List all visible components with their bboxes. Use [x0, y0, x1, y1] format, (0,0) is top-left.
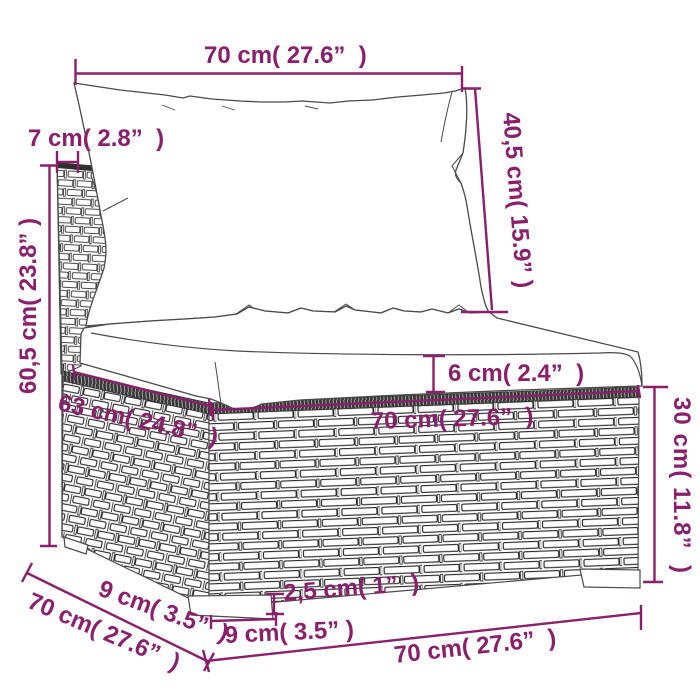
svg-text:7 cm( 2.8” ): 7 cm( 2.8” )	[28, 125, 164, 152]
svg-text:6 cm( 2.4” ): 6 cm( 2.4” )	[448, 360, 584, 387]
svg-text:70 cm( 27.6” ): 70 cm( 27.6” )	[370, 403, 534, 435]
svg-text:70 cm( 27.6” ): 70 cm( 27.6” )	[204, 42, 367, 69]
svg-text:30 cm( 11.8” ): 30 cm( 11.8” )	[668, 397, 695, 573]
svg-text:60,5 cm( 23.8” ): 60,5 cm( 23.8” )	[15, 218, 42, 394]
